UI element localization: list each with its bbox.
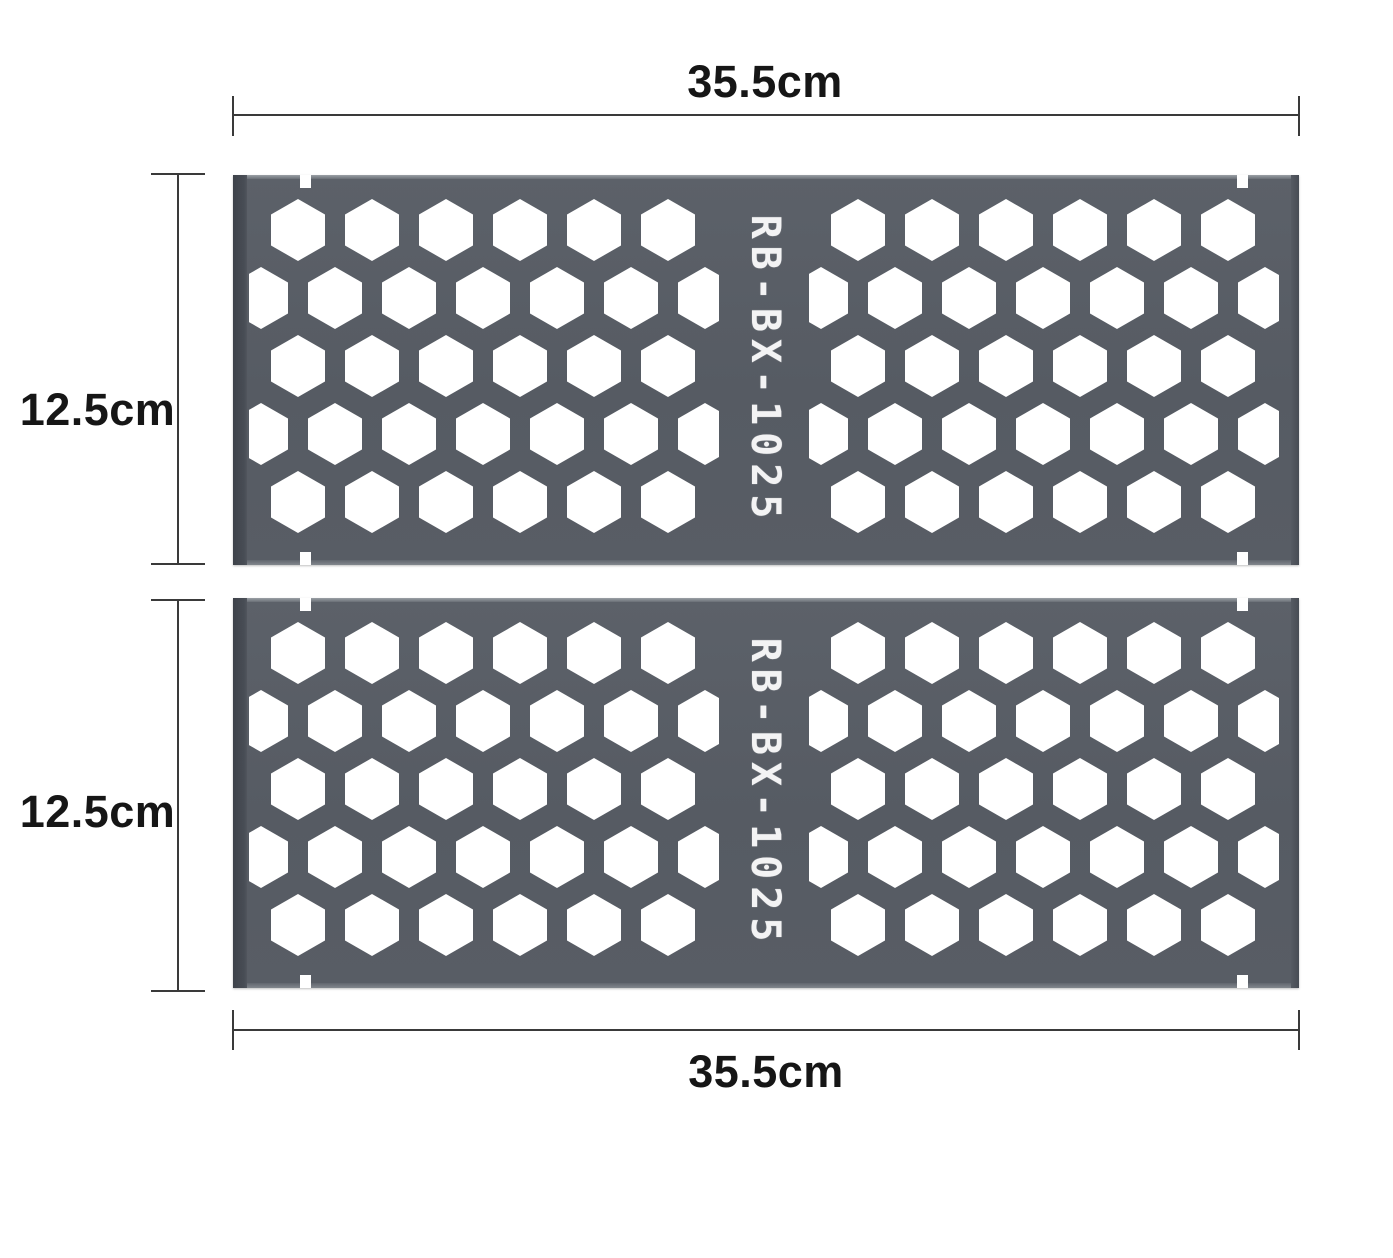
hex-hole <box>979 199 1033 261</box>
hex-hole <box>979 622 1033 684</box>
hex-hole <box>493 894 547 956</box>
hex-hole <box>1016 826 1070 888</box>
hex-hole <box>419 622 473 684</box>
hex-hole <box>567 622 621 684</box>
hex-hole <box>979 335 1033 397</box>
hex-hole <box>567 894 621 956</box>
hex-hole <box>530 826 584 888</box>
panel2-bottom-right-notch <box>1237 975 1248 988</box>
hex-hole <box>1201 471 1255 533</box>
panel1-hex-pattern-left <box>249 175 719 565</box>
hex-hole <box>1164 403 1218 465</box>
hex-hole <box>641 335 695 397</box>
hex-hole <box>419 335 473 397</box>
hex-hole <box>249 690 288 752</box>
panel2-height-label: 12.5cm <box>10 786 185 838</box>
hex-hole <box>868 403 922 465</box>
hex-hole <box>567 758 621 820</box>
hex-hole <box>345 199 399 261</box>
hex-hole <box>678 403 719 465</box>
hex-hole <box>567 471 621 533</box>
hex-hole <box>419 199 473 261</box>
panel1-model-band: RB-BX-1025 <box>721 175 809 565</box>
hex-hole <box>1016 267 1070 329</box>
hex-hole <box>905 894 959 956</box>
hex-hole <box>604 826 658 888</box>
hex-hole <box>678 826 719 888</box>
hex-hole <box>419 471 473 533</box>
hex-hole <box>641 622 695 684</box>
hex-hole <box>345 335 399 397</box>
hex-hole <box>345 758 399 820</box>
hex-hole <box>1164 690 1218 752</box>
hex-hole <box>942 403 996 465</box>
hex-hole <box>308 826 362 888</box>
hex-hole <box>567 199 621 261</box>
hex-hole <box>382 826 436 888</box>
hex-hole <box>1053 335 1107 397</box>
hex-hole <box>456 403 510 465</box>
hex-hole <box>456 826 510 888</box>
panel2-height-top-tick <box>151 599 205 601</box>
hex-hole <box>1127 758 1181 820</box>
hex-hole <box>530 690 584 752</box>
hex-hole <box>1090 826 1144 888</box>
perforated-panel-2: RB-BX-1025 <box>233 598 1299 988</box>
top-width-dimension-line <box>233 114 1300 116</box>
hex-hole <box>1016 690 1070 752</box>
hex-hole <box>641 758 695 820</box>
hex-hole <box>1053 199 1107 261</box>
hex-hole <box>1201 758 1255 820</box>
hex-hole <box>1201 894 1255 956</box>
panel1-model-number-label: RB-BX-1025 <box>742 215 788 526</box>
hex-hole <box>641 894 695 956</box>
panel1-top-right-notch <box>1237 175 1248 188</box>
hex-hole <box>1201 199 1255 261</box>
hex-hole <box>831 335 885 397</box>
hex-hole <box>868 690 922 752</box>
hex-hole <box>979 471 1033 533</box>
hex-hole <box>942 690 996 752</box>
hex-hole <box>1127 894 1181 956</box>
panel1-left-fold-edge <box>233 175 247 565</box>
panel2-bottom-left-notch <box>300 975 311 988</box>
hex-hole <box>530 267 584 329</box>
hex-hole <box>249 403 288 465</box>
hex-hole <box>382 690 436 752</box>
panel1-height-top-tick <box>151 173 205 175</box>
hex-hole <box>493 335 547 397</box>
hex-hole <box>979 758 1033 820</box>
hex-hole <box>1238 690 1279 752</box>
hex-hole <box>1053 894 1107 956</box>
hex-hole <box>308 267 362 329</box>
hex-hole <box>345 471 399 533</box>
hex-hole <box>905 622 959 684</box>
panel2-model-band: RB-BX-1025 <box>721 598 809 988</box>
hex-hole <box>1238 826 1279 888</box>
panel1-height-dimension-line <box>177 174 179 565</box>
hex-hole <box>271 471 325 533</box>
product-dimension-diagram: 35.5cm 12.5cm 12.5cm 35.5cm RB-BX-1025 <box>0 0 1393 1258</box>
hex-hole <box>493 622 547 684</box>
hex-hole <box>831 894 885 956</box>
hex-hole <box>905 758 959 820</box>
hex-hole <box>942 826 996 888</box>
hex-hole <box>604 403 658 465</box>
hex-hole <box>809 826 848 888</box>
panel1-top-left-notch <box>300 175 311 188</box>
hex-hole <box>831 471 885 533</box>
hex-hole <box>868 826 922 888</box>
hex-hole <box>1053 622 1107 684</box>
panel2-height-bottom-tick <box>151 990 205 992</box>
hex-hole <box>831 199 885 261</box>
panel2-model-number-label: RB-BX-1025 <box>742 638 788 949</box>
panel1-height-bottom-tick <box>151 563 205 565</box>
panel1-bottom-right-notch <box>1237 552 1248 565</box>
hex-hole <box>456 267 510 329</box>
hex-hole <box>271 199 325 261</box>
hex-hole <box>831 622 885 684</box>
hex-hole <box>1164 267 1218 329</box>
hex-hole <box>493 471 547 533</box>
panel2-right-edge <box>1291 598 1299 988</box>
perforated-panel-1: RB-BX-1025 <box>233 175 1299 565</box>
hex-hole <box>308 690 362 752</box>
hex-hole <box>604 267 658 329</box>
hex-hole <box>1201 622 1255 684</box>
hex-hole <box>831 758 885 820</box>
hex-hole <box>382 403 436 465</box>
hex-hole <box>271 622 325 684</box>
hex-hole <box>1238 267 1279 329</box>
hex-hole <box>809 267 848 329</box>
hex-hole <box>308 403 362 465</box>
hex-hole <box>1201 335 1255 397</box>
hex-hole <box>456 690 510 752</box>
hex-hole <box>271 758 325 820</box>
hex-hole <box>979 894 1033 956</box>
panel1-bottom-left-notch <box>300 552 311 565</box>
hex-hole <box>1127 471 1181 533</box>
hex-hole <box>271 335 325 397</box>
hex-hole <box>493 199 547 261</box>
hex-hole <box>905 335 959 397</box>
hex-hole <box>530 403 584 465</box>
hex-hole <box>1016 403 1070 465</box>
hex-hole <box>868 267 922 329</box>
hex-hole <box>905 199 959 261</box>
hex-hole <box>271 894 325 956</box>
hex-hole <box>419 758 473 820</box>
top-width-label: 35.5cm <box>615 56 915 108</box>
hex-hole <box>678 267 719 329</box>
hex-hole <box>249 826 288 888</box>
hex-hole <box>382 267 436 329</box>
hex-hole <box>1090 267 1144 329</box>
hex-hole <box>419 894 473 956</box>
hex-hole <box>809 403 848 465</box>
hex-hole <box>567 335 621 397</box>
hex-hole <box>1164 826 1218 888</box>
panel2-height-dimension-line <box>177 600 179 992</box>
panel2-top-right-notch <box>1237 598 1248 611</box>
hex-hole <box>678 690 719 752</box>
panel2-hex-pattern-right <box>809 598 1279 988</box>
hex-hole <box>345 622 399 684</box>
hex-hole <box>1090 690 1144 752</box>
hex-hole <box>345 894 399 956</box>
top-width-right-tick <box>1298 96 1300 136</box>
hex-hole <box>905 471 959 533</box>
bottom-width-dimension-line <box>233 1029 1300 1031</box>
hex-hole <box>249 267 288 329</box>
bottom-width-label: 35.5cm <box>616 1046 916 1098</box>
panel1-hex-pattern-right <box>809 175 1279 565</box>
bottom-width-left-tick <box>232 1010 234 1050</box>
panel2-hex-pattern-left <box>249 598 719 988</box>
hex-hole <box>1053 758 1107 820</box>
panel1-right-edge <box>1291 175 1299 565</box>
panel2-top-left-notch <box>300 598 311 611</box>
hex-hole <box>1127 199 1181 261</box>
hex-hole <box>1090 403 1144 465</box>
hex-hole <box>942 267 996 329</box>
panel2-left-fold-edge <box>233 598 247 988</box>
hex-hole <box>604 690 658 752</box>
hex-hole <box>1127 622 1181 684</box>
panel1-height-label: 12.5cm <box>10 384 185 436</box>
hex-hole <box>1053 471 1107 533</box>
hex-hole <box>493 758 547 820</box>
hex-hole <box>1127 335 1181 397</box>
top-width-left-tick <box>232 96 234 136</box>
hex-hole <box>1238 403 1279 465</box>
bottom-width-right-tick <box>1298 1010 1300 1050</box>
hex-hole <box>809 690 848 752</box>
hex-hole <box>641 471 695 533</box>
hex-hole <box>641 199 695 261</box>
